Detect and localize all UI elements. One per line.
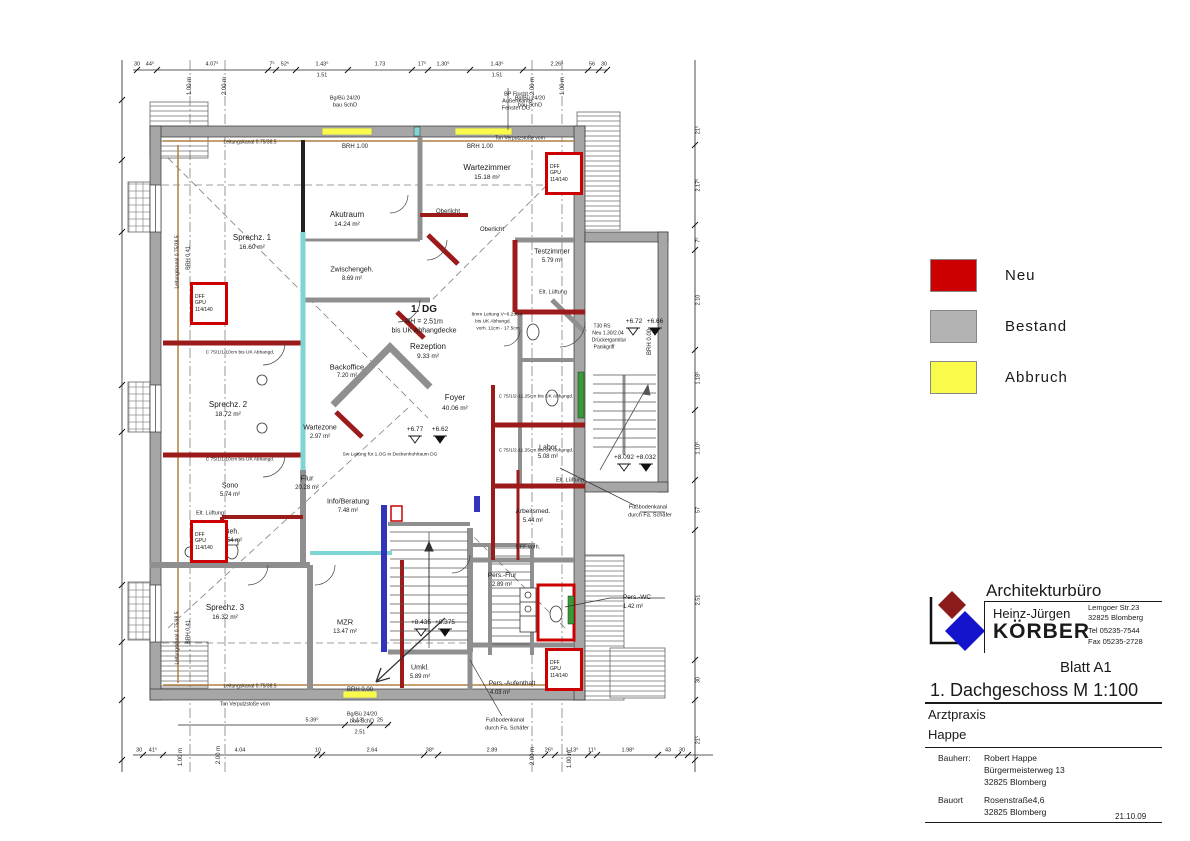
drawing-date: 21.10.09 — [1115, 812, 1146, 821]
legend-label: Neu — [1005, 267, 1036, 284]
bauherr-city: 32825 Blomberg — [984, 777, 1046, 787]
legend-label: Bestand — [1005, 318, 1067, 335]
legend-label: Abbruch — [1005, 369, 1068, 386]
legend: NeuBestandAbbruch — [930, 260, 1068, 413]
project-name-2: Happe — [928, 727, 966, 742]
sheet-number: Blatt A1 — [1060, 659, 1112, 676]
office-phone: Tel 05235-7544 — [1088, 626, 1140, 635]
dff-roof-window-box: DFFGPU114/140 — [190, 520, 228, 563]
dff-label: 114/140 — [550, 673, 580, 679]
legend-swatch — [930, 361, 977, 394]
legend-row: Bestand — [930, 311, 1068, 342]
drawing-title: 1. Dachgeschoss M 1:100 — [930, 680, 1138, 701]
office-name-line2: KÖRBER — [993, 620, 1090, 644]
bauort-street: Rosenstraße4,6 — [984, 795, 1044, 805]
bauherr-label: Bauherr: — [938, 753, 971, 763]
dff-roof-window-box: DFFGPU114/140 — [545, 648, 583, 691]
door-arcs — [248, 195, 585, 585]
legend-swatch — [930, 310, 977, 343]
legend-row: Abbruch — [930, 362, 1068, 393]
drawing-sheet: Sprechz. 116.60 m²Akutraum14.24 m²Zwisch… — [0, 0, 1190, 841]
abbruch-segments — [322, 128, 512, 698]
office-fax: Fax 05235-2728 — [1088, 637, 1143, 646]
roof-height-lines — [162, 60, 574, 772]
bauort-label: Bauort — [938, 795, 963, 805]
legend-row: Neu — [930, 260, 1068, 291]
office-address-1: Lemgoer Str.23 — [1088, 603, 1139, 612]
dff-label: 114/140 — [550, 177, 580, 183]
colored-elements — [303, 232, 584, 652]
dff-label: 114/140 — [195, 545, 225, 551]
bauherr-name: Robert Happe — [984, 753, 1037, 763]
office-type: Architekturbüro — [986, 581, 1101, 601]
office-name-line1: Heinz-Jürgen — [993, 606, 1070, 621]
bauort-city: 32825 Blomberg — [984, 807, 1046, 817]
window-marker — [414, 127, 420, 136]
bauherr-street: Bürgermeisterweg 13 — [984, 765, 1065, 775]
office-logo — [925, 585, 991, 661]
dff-roof-window-box: DFFGPU114/140 — [545, 152, 583, 195]
project-name-1: Arztpraxis — [928, 707, 986, 722]
floor-plan-drawing — [0, 0, 1190, 841]
sanitary-fixtures — [185, 324, 562, 632]
dff-roof-window-box: DFFGPU114/140 — [190, 282, 228, 325]
office-address-2: 32825 Blomberg — [1088, 613, 1143, 622]
legend-swatch — [930, 259, 977, 292]
dff-label: 114/140 — [195, 307, 225, 313]
